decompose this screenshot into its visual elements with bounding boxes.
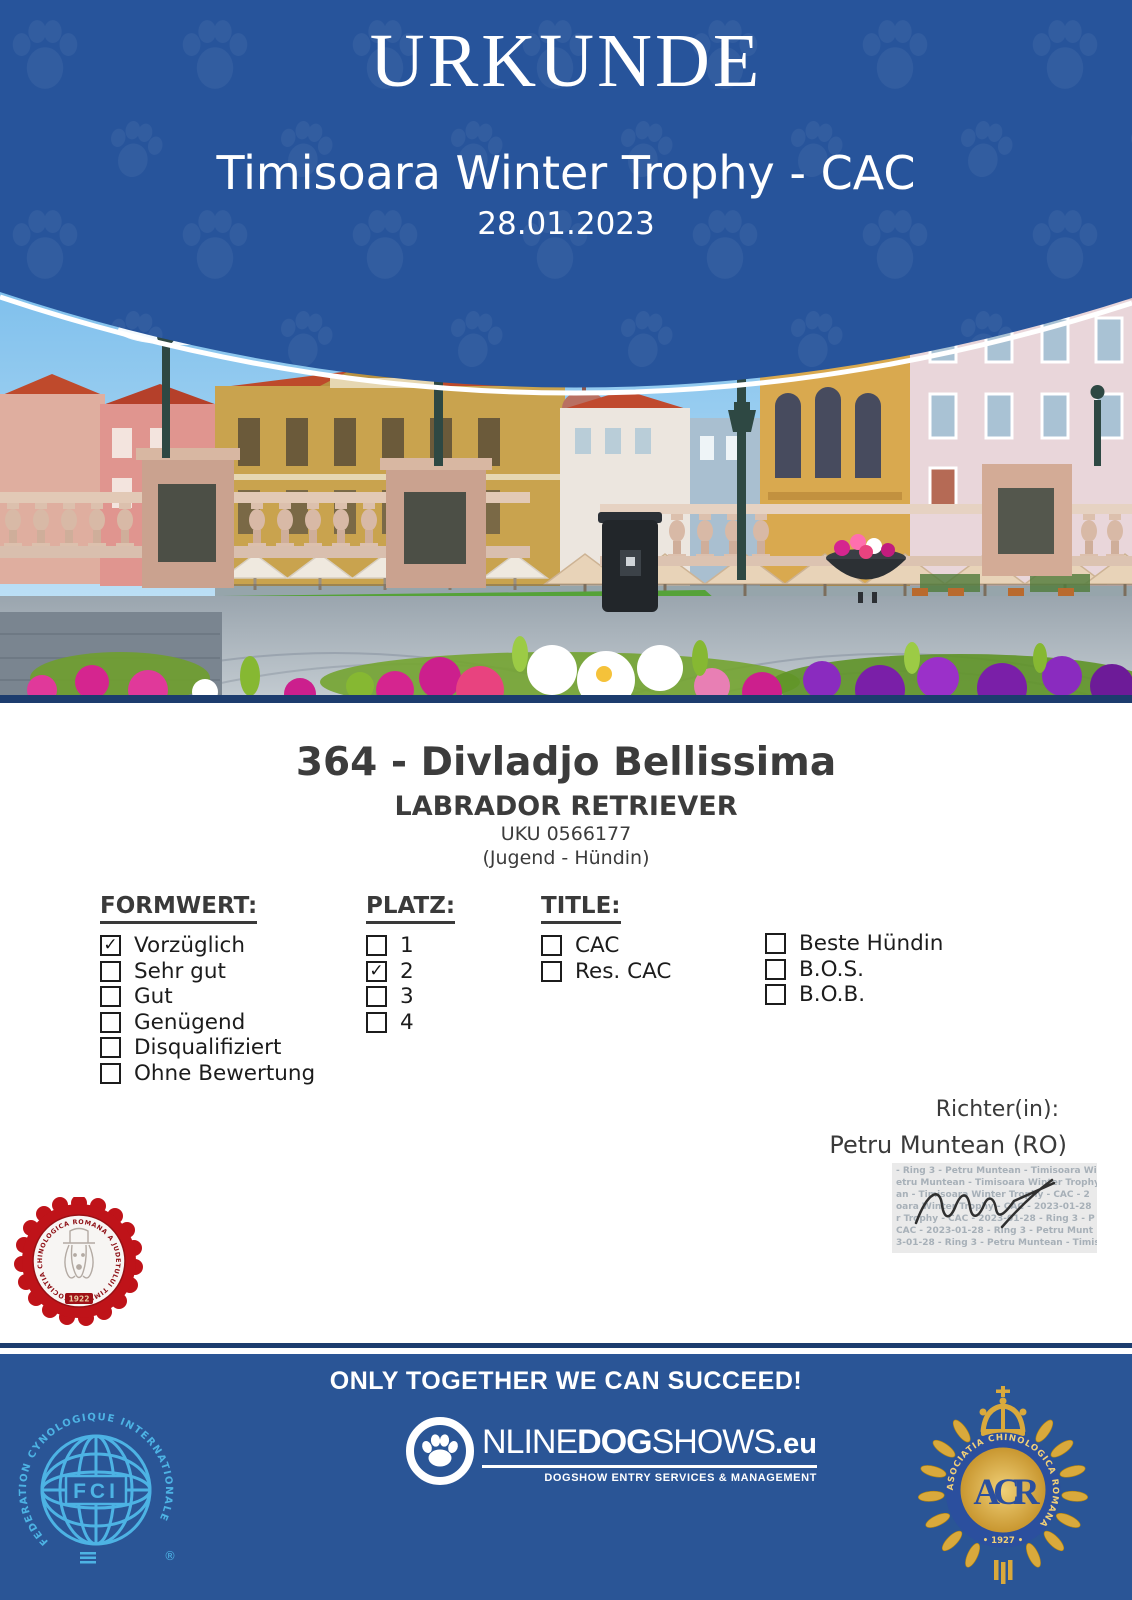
dog-breed: LABRADOR RETRIEVER bbox=[0, 791, 1132, 822]
checkbox[interactable] bbox=[366, 935, 387, 956]
judge-label: Richter(in): bbox=[936, 1097, 1059, 1122]
fci-abbr: FCI bbox=[73, 1480, 119, 1503]
formwert-column: FORMWERT: ✓ Vorzüglich Sehr gut Gut Genü… bbox=[100, 893, 315, 1086]
formwert-ohne-bewertung[interactable]: Ohne Bewertung bbox=[100, 1061, 315, 1087]
checkbox-checked[interactable]: ✓ bbox=[366, 961, 387, 982]
onlinedogshows-wordmark: NLINE DOG SHOWS .eu bbox=[482, 1423, 817, 1462]
checkbox[interactable] bbox=[541, 935, 562, 956]
checkbox[interactable] bbox=[100, 961, 121, 982]
dog-number-name: 364 - Divladjo Bellissima bbox=[0, 740, 1132, 785]
option-label: 1 bbox=[400, 933, 414, 958]
title-beste-huendin[interactable]: Beste Hündin bbox=[765, 931, 943, 957]
platz-heading: PLATZ: bbox=[366, 893, 455, 924]
option-label: Gut bbox=[134, 984, 173, 1009]
option-label: Genügend bbox=[134, 1010, 245, 1035]
checkbox[interactable] bbox=[765, 933, 786, 954]
crown-icon bbox=[980, 1386, 1027, 1436]
judge-name: Petru Muntean (RO) bbox=[829, 1131, 1067, 1159]
footer-top-line bbox=[0, 1343, 1132, 1348]
option-label: Ohne Bewertung bbox=[134, 1061, 315, 1086]
checkbox[interactable] bbox=[100, 1037, 121, 1058]
certificate-title: URKUNDE bbox=[0, 18, 1132, 105]
formwert-disqualifiziert[interactable]: Disqualifiziert bbox=[100, 1035, 315, 1061]
option-label: Sehr gut bbox=[134, 959, 226, 984]
dog-class: (Jugend - Hündin) bbox=[0, 847, 1132, 869]
option-label: B.O.S. bbox=[799, 957, 864, 982]
acr-crest-logo: ASOCIATIA CHINOLOGICA ROMANA • 1927 • AC… bbox=[915, 1380, 1091, 1595]
formwert-gut[interactable]: Gut bbox=[100, 984, 315, 1010]
ods-shows: SHOWS bbox=[652, 1423, 775, 1462]
event-date: 28.01.2023 bbox=[0, 206, 1132, 242]
seal-year: 1922 bbox=[69, 1295, 90, 1304]
title-bos[interactable]: B.O.S. bbox=[765, 957, 943, 983]
option-label: CAC bbox=[575, 933, 619, 958]
photo-bottom-divider bbox=[0, 695, 1132, 703]
option-label: 3 bbox=[400, 984, 414, 1009]
judge-signature-stamp: - Ring 3 - Petru Muntean - Timisoara Wi … bbox=[892, 1163, 1097, 1253]
platz-3[interactable]: 3 bbox=[366, 984, 455, 1010]
event-name: Timisoara Winter Trophy - CAC bbox=[0, 146, 1132, 200]
dog-registration: UKU 0566177 bbox=[0, 823, 1132, 845]
ods-dog: DOG bbox=[577, 1423, 651, 1462]
title-heading: TITLE: bbox=[541, 893, 621, 924]
signature-icon bbox=[904, 1167, 1079, 1247]
ods-eu: .eu bbox=[775, 1428, 817, 1461]
checkbox[interactable] bbox=[765, 984, 786, 1005]
ods-tagline: DOGSHOW ENTRY SERVICES & MANAGEMENT bbox=[482, 1472, 817, 1484]
fci-logo: FCI FEDERATION CYNOLOGIQUE INTERNATIONAL… bbox=[18, 1402, 183, 1587]
checkbox[interactable] bbox=[541, 961, 562, 982]
fci-registered-mark: ® bbox=[164, 1549, 176, 1563]
checkbox[interactable] bbox=[100, 986, 121, 1007]
formwert-heading: FORMWERT: bbox=[100, 893, 257, 924]
option-label: Vorzüglich bbox=[134, 933, 245, 958]
option-label: Disqualifiziert bbox=[134, 1035, 281, 1060]
checkbox[interactable] bbox=[100, 1012, 121, 1033]
platz-2[interactable]: ✓ 2 bbox=[366, 959, 455, 985]
paw-circle-icon bbox=[402, 1413, 478, 1489]
extra-titles-column: Beste Hündin B.O.S. B.O.B. bbox=[765, 931, 943, 1008]
checkbox[interactable] bbox=[100, 1063, 121, 1084]
club-seal-icon: ASOCIATIA CHINOLOGICA ROMANA A JUDETULUI… bbox=[13, 1197, 145, 1333]
checkbox[interactable] bbox=[366, 1012, 387, 1033]
acr-monogram: ACR bbox=[973, 1472, 1040, 1513]
formwert-genuegend[interactable]: Genügend bbox=[100, 1010, 315, 1036]
platz-column: PLATZ: 1 ✓ 2 3 4 bbox=[366, 893, 455, 1035]
platz-1[interactable]: 1 bbox=[366, 933, 455, 959]
title-res-cac[interactable]: Res. CAC bbox=[541, 959, 671, 985]
acr-year: • 1927 • bbox=[983, 1536, 1023, 1546]
formwert-sehr-gut[interactable]: Sehr gut bbox=[100, 959, 315, 985]
option-label: Res. CAC bbox=[575, 959, 671, 984]
checkbox-checked[interactable]: ✓ bbox=[100, 935, 121, 956]
option-label: 4 bbox=[400, 1010, 414, 1035]
certificate-page: URKUNDE Timisoara Winter Trophy - CAC 28… bbox=[0, 0, 1132, 1600]
onlinedogshows-logo: NLINE DOG SHOWS .eu DOGSHOW ENTRY SERVIC… bbox=[402, 1413, 817, 1489]
option-label: 2 bbox=[400, 959, 414, 984]
ods-nline: NLINE bbox=[482, 1423, 577, 1462]
ods-underline bbox=[482, 1465, 817, 1468]
option-label: Beste Hündin bbox=[799, 931, 943, 956]
checkbox[interactable] bbox=[366, 986, 387, 1007]
title-bob[interactable]: B.O.B. bbox=[765, 982, 943, 1008]
checkbox[interactable] bbox=[765, 959, 786, 980]
formwert-vorzueglich[interactable]: ✓ Vorzüglich bbox=[100, 933, 315, 959]
title-column: TITLE: CAC Res. CAC bbox=[541, 893, 671, 984]
title-cac[interactable]: CAC bbox=[541, 933, 671, 959]
option-label: B.O.B. bbox=[799, 982, 865, 1007]
platz-4[interactable]: 4 bbox=[366, 1010, 455, 1036]
